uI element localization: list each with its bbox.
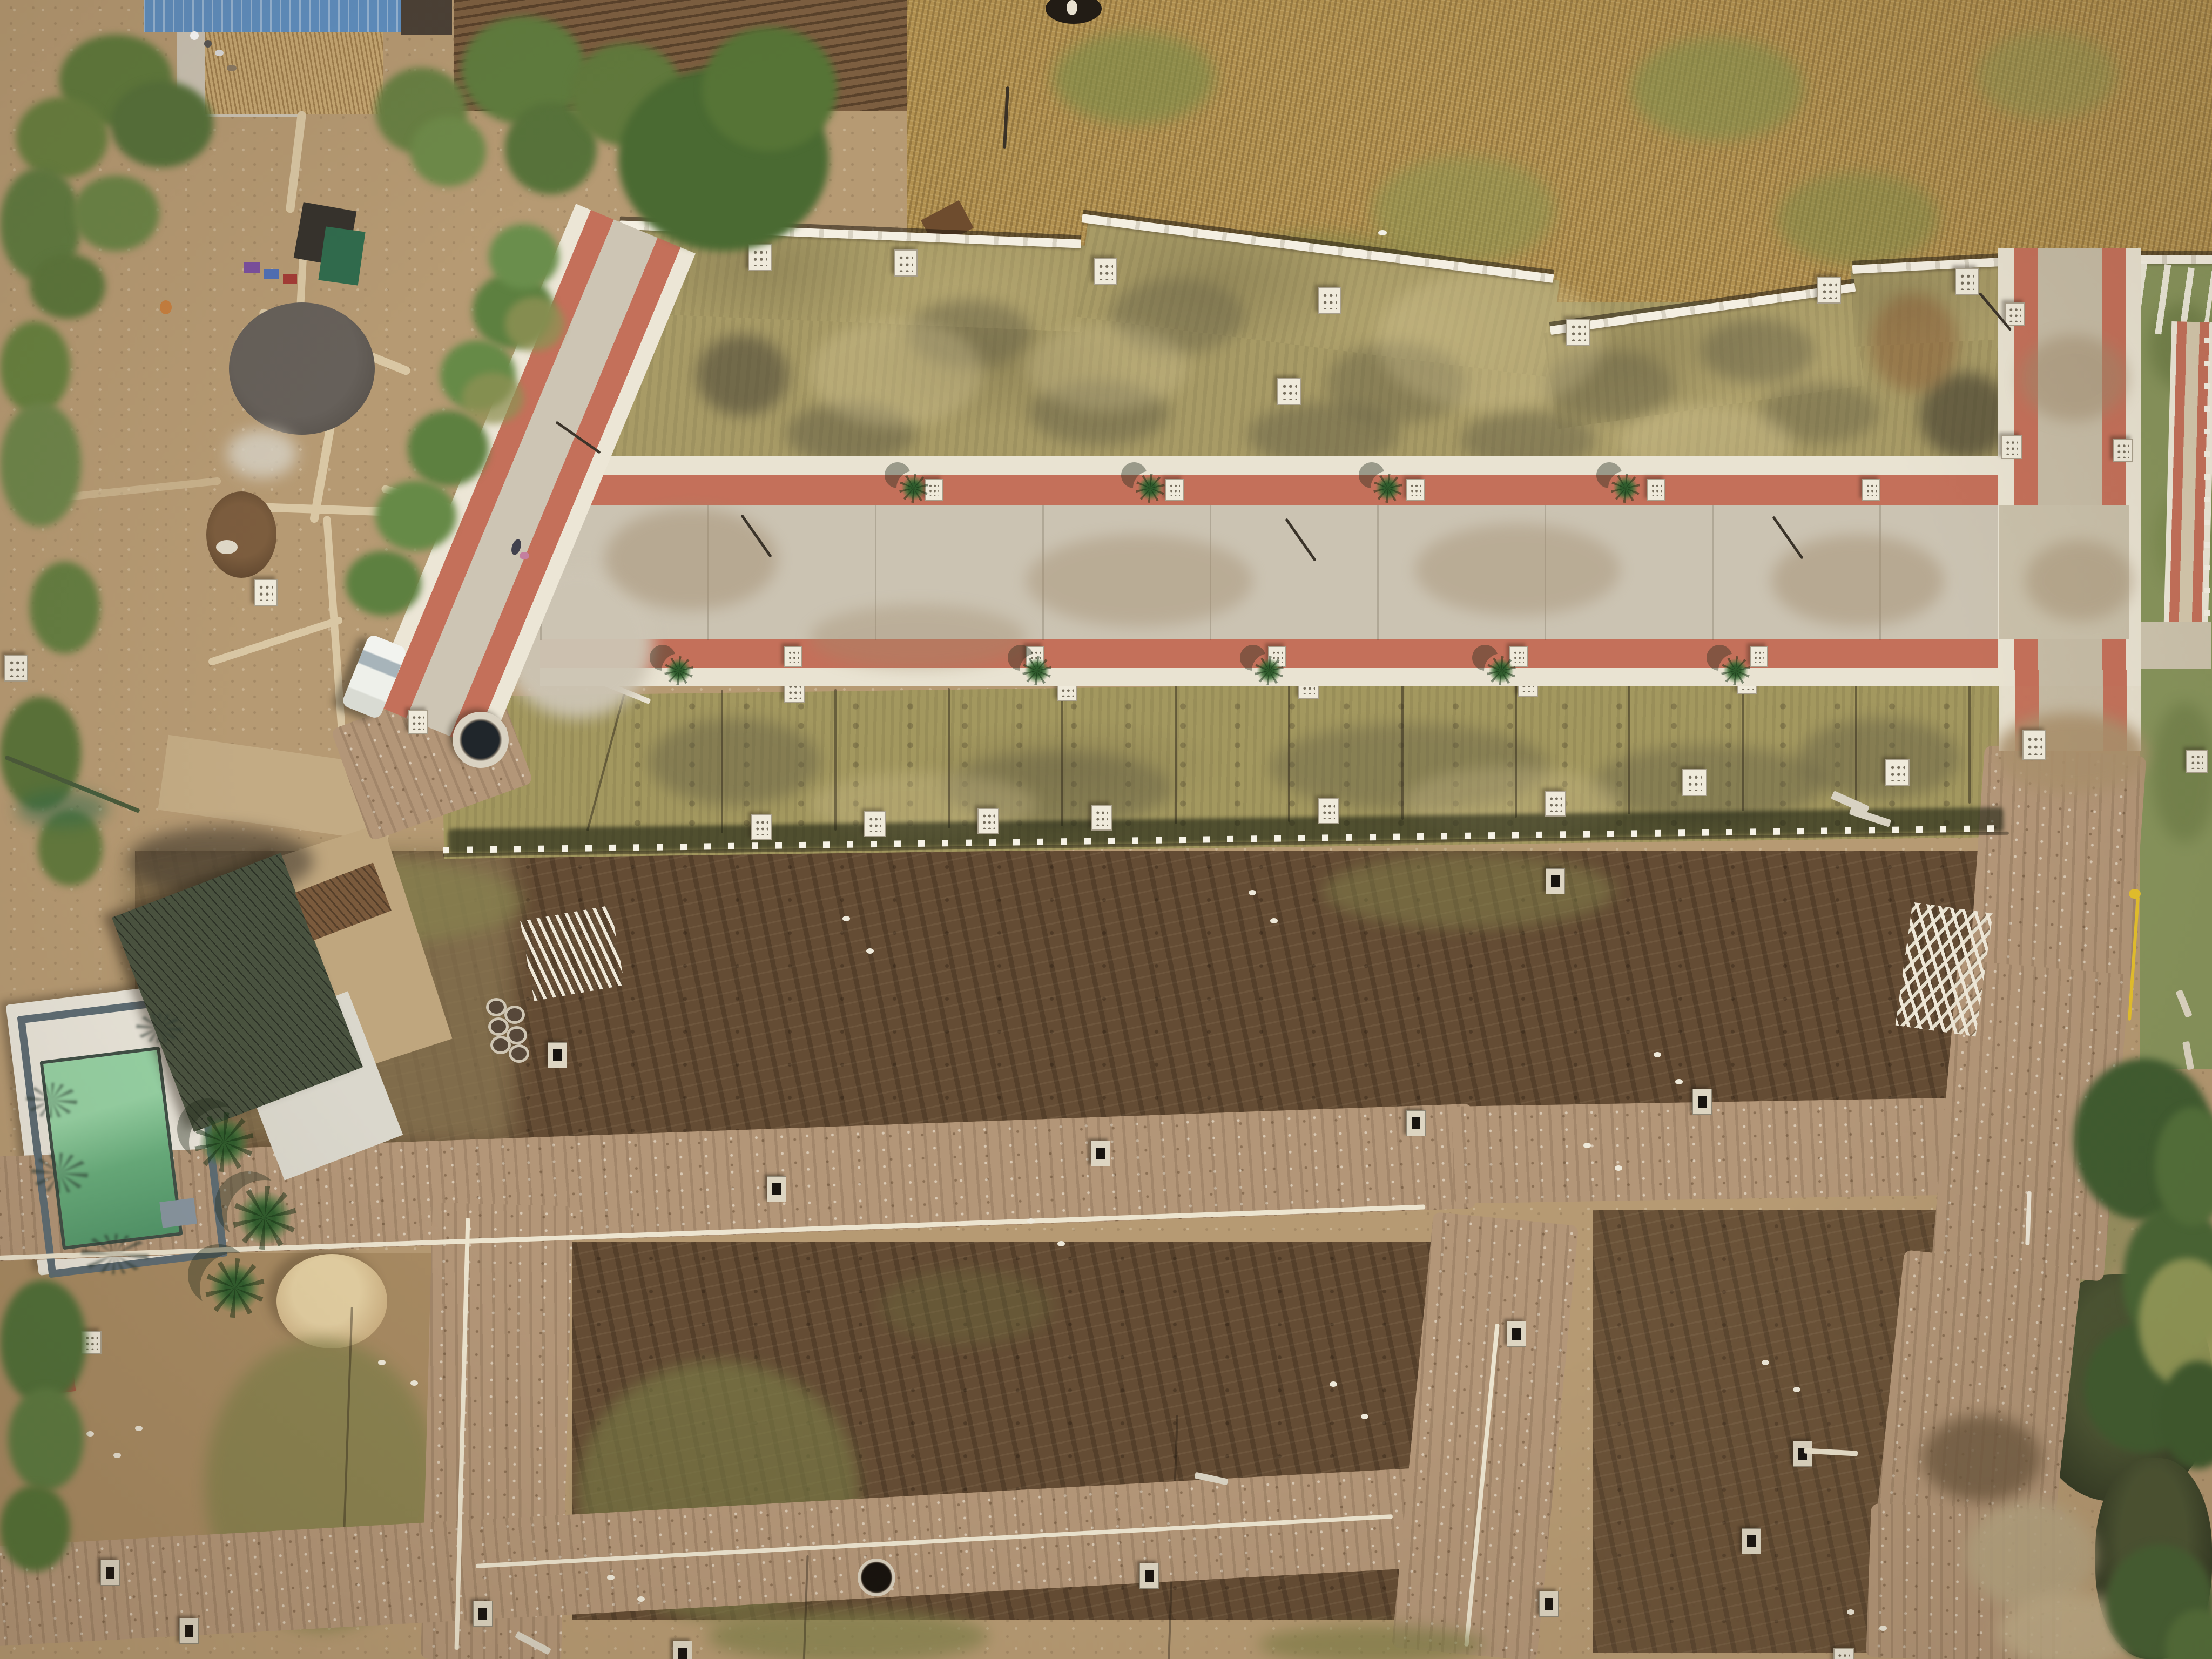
catch-basin-dark	[1507, 1321, 1526, 1347]
plot-fence-line	[1061, 687, 1063, 826]
utility-box	[159, 1198, 197, 1228]
debris-white	[607, 1575, 615, 1580]
plot-fence-line	[1515, 683, 1517, 818]
road-dust	[2020, 335, 2128, 421]
concrete-ring	[504, 1006, 525, 1024]
debris-white	[1879, 1626, 1887, 1631]
dry-palm	[462, 373, 524, 424]
palm-sapling	[1252, 653, 1286, 688]
palm-sapling	[1608, 471, 1643, 505]
catch-basin	[2005, 302, 2025, 326]
catch-basin-dark	[1546, 868, 1565, 894]
tree-canopy	[0, 321, 70, 413]
sidewalk-plate	[784, 646, 802, 667]
plot-marker	[1566, 319, 1590, 346]
tree-canopy	[0, 1280, 86, 1404]
yellow-hose-end	[2129, 889, 2141, 899]
catch-basin-dark	[1793, 1441, 1812, 1467]
debris-white	[1762, 1360, 1769, 1365]
catch-basin	[2113, 439, 2133, 462]
debris-white	[1270, 918, 1278, 923]
palm-tree	[346, 551, 421, 616]
debris-white	[410, 1380, 418, 1386]
palm-sapling	[1133, 471, 1168, 505]
clothesline-cloth	[244, 262, 260, 273]
sidewalk-plate	[1165, 479, 1184, 501]
debris-white	[1583, 1143, 1591, 1148]
field-green-patch	[1777, 173, 1939, 265]
plot-marker	[1955, 268, 1979, 295]
plot-marker	[1885, 759, 1910, 786]
plot-fence-line	[1175, 686, 1177, 824]
catch-basin-dark	[100, 1560, 120, 1586]
debris-white	[1361, 1414, 1368, 1419]
debris-white	[1615, 1165, 1622, 1171]
dry-palm	[505, 297, 564, 351]
plot-fence-line	[1968, 678, 1971, 804]
palm-shadow	[81, 1234, 149, 1274]
debris-white	[842, 916, 850, 921]
catch-basin-dark	[1742, 1528, 1761, 1554]
catch-basin-dark	[1139, 1563, 1159, 1589]
grass-dark-patch	[697, 335, 788, 416]
plot-marker	[1094, 258, 1117, 285]
debris-white	[1057, 1241, 1065, 1246]
green-tarp	[318, 226, 365, 285]
palm-tree	[408, 410, 489, 486]
plot-fence-line	[1401, 684, 1404, 820]
road-dust	[605, 508, 778, 610]
strip-mottle	[648, 718, 821, 805]
plot-marker	[2022, 730, 2046, 760]
dirt-road-1-east	[1452, 1097, 2005, 1204]
catch-basin	[1833, 1648, 1854, 1659]
palm-sapling	[1718, 653, 1753, 688]
survey-marker	[4, 655, 28, 682]
concrete-ring	[509, 1044, 529, 1063]
catch-basin	[2001, 435, 2022, 459]
pad-object	[215, 50, 224, 56]
debris-white	[1027, 1218, 1035, 1224]
palm-tree	[489, 224, 559, 289]
person-orange	[160, 300, 172, 314]
pad-object	[204, 40, 212, 48]
palm-shadow	[136, 1013, 182, 1043]
palm-tree	[375, 481, 456, 551]
plot-fence-line	[1742, 680, 1744, 811]
grass-dark-patch	[1701, 319, 1815, 383]
concrete-ring	[486, 998, 507, 1016]
survey-marker	[254, 579, 278, 606]
sidewalk-plate	[1862, 479, 1880, 501]
plot-marker	[1277, 378, 1301, 405]
tree-canopy	[73, 176, 159, 251]
grass-dry-patch	[1026, 324, 1188, 410]
debris-white	[637, 1596, 645, 1602]
clothesline-cloth	[283, 274, 297, 284]
catch-basin-dark	[1091, 1141, 1110, 1166]
grass-dry-patch	[810, 319, 983, 427]
motorbike	[520, 552, 529, 559]
debris-white	[1249, 890, 1256, 895]
catch-basin	[1545, 791, 1566, 817]
pipe-pile-crossed	[1896, 902, 1993, 1037]
plot-fence-line	[1288, 685, 1290, 822]
palm-sapling	[896, 471, 931, 505]
plot-fence-line	[1628, 682, 1630, 814]
concrete-ring	[490, 1036, 511, 1054]
road-dust	[810, 605, 1026, 670]
sidewalk-plate	[1647, 479, 1665, 501]
palm-sapling	[1484, 653, 1519, 688]
debris-white	[1654, 1052, 1661, 1057]
palm-tree	[200, 1253, 270, 1323]
clothesline-cloth	[264, 269, 279, 279]
debris-white	[86, 1431, 94, 1437]
catch-basin-dark	[673, 1641, 692, 1659]
plot-marker	[894, 249, 918, 276]
road-dust	[2025, 540, 2133, 621]
road-dust	[1026, 535, 1253, 626]
plot-fence-line	[834, 689, 837, 831]
gate-pillar	[408, 710, 428, 734]
shrub	[30, 562, 100, 653]
strip-mottle	[1798, 718, 1960, 799]
debris-white	[866, 948, 874, 954]
grass-brown-patch	[1871, 294, 1958, 392]
catch-basin-dark	[1539, 1591, 1559, 1617]
ash-mound	[229, 302, 375, 435]
catch-basin	[751, 814, 772, 840]
pad-object	[227, 65, 237, 71]
plot-marker	[1318, 287, 1341, 314]
debris-white	[1847, 1609, 1854, 1615]
debris-white	[1793, 1387, 1800, 1392]
field-green-patch	[1977, 32, 2117, 119]
weed-patch	[1323, 853, 1615, 929]
debris-white	[378, 1360, 386, 1365]
catch-basin-dark	[767, 1176, 786, 1202]
tarp-roof-blue	[144, 0, 414, 32]
tree-canopy	[702, 27, 837, 151]
concrete-ring	[488, 1017, 509, 1036]
fence-posts-row	[2204, 335, 2210, 616]
weed-patch	[880, 1269, 1053, 1345]
catch-basin-dark	[179, 1618, 199, 1644]
sidewalk-plate	[1750, 646, 1768, 667]
tree-canopy	[410, 116, 486, 186]
rubble-pile	[1923, 1415, 2041, 1501]
white-bird	[1378, 230, 1387, 235]
road-dust	[1415, 524, 1620, 616]
tree-canopy	[0, 1485, 70, 1572]
palm-tree	[227, 1180, 302, 1256]
debris-white	[135, 1426, 143, 1431]
aerial-photo-canvas	[0, 0, 2212, 1659]
plot-marker	[1817, 276, 1841, 304]
tree-canopy	[8, 1388, 84, 1491]
plot-fence-line	[948, 688, 950, 828]
palm-tree	[189, 1107, 259, 1177]
weed-patch	[707, 1609, 988, 1659]
palm-sapling	[1020, 653, 1054, 688]
pvc-pipe-stack	[520, 905, 624, 1001]
ash-patch	[227, 429, 297, 478]
catch-basin-dark	[1406, 1110, 1426, 1136]
shrub	[0, 402, 81, 527]
palm-sapling	[1371, 471, 1405, 505]
plot-fence-line	[1855, 679, 1857, 808]
plot-marker	[748, 244, 772, 271]
green-netting	[16, 790, 108, 827]
plot-marker	[2186, 750, 2208, 773]
field-green-patch	[1631, 38, 1804, 140]
concrete-ring-manhole	[453, 712, 509, 768]
catch-basin	[1091, 805, 1112, 831]
tree-canopy	[111, 81, 213, 167]
field-green-patch	[1053, 32, 1215, 124]
catch-basin-dark	[1692, 1089, 1712, 1115]
ash-dots	[216, 540, 238, 554]
hut-dark	[401, 0, 452, 35]
catch-basin	[864, 811, 886, 837]
catch-basin-dark	[548, 1042, 567, 1068]
sand-pile	[276, 1254, 387, 1348]
catch-basin	[1318, 798, 1339, 824]
palm-shadow	[26, 1083, 77, 1118]
debris-white	[1675, 1079, 1683, 1084]
debris-white	[113, 1453, 121, 1458]
pad-object	[190, 31, 199, 40]
catch-basin-dark	[473, 1601, 493, 1627]
well-bucket	[1067, 0, 1077, 15]
catch-basin	[977, 808, 999, 834]
plot-fence-line	[721, 690, 723, 833]
walkway-junction	[2141, 622, 2211, 669]
tree-canopy	[16, 97, 108, 178]
manhole	[858, 1559, 895, 1596]
burn-pile	[206, 491, 276, 578]
tree-canopy	[30, 254, 105, 319]
weed-patch	[1258, 1626, 1485, 1659]
debris-white	[1330, 1381, 1337, 1387]
road-dirt-cover	[1995, 713, 2147, 794]
palm-shadow	[31, 1153, 88, 1193]
sidewalk-plate	[1406, 479, 1425, 501]
palm-sapling	[662, 653, 696, 688]
plot-marker	[1682, 769, 1707, 796]
